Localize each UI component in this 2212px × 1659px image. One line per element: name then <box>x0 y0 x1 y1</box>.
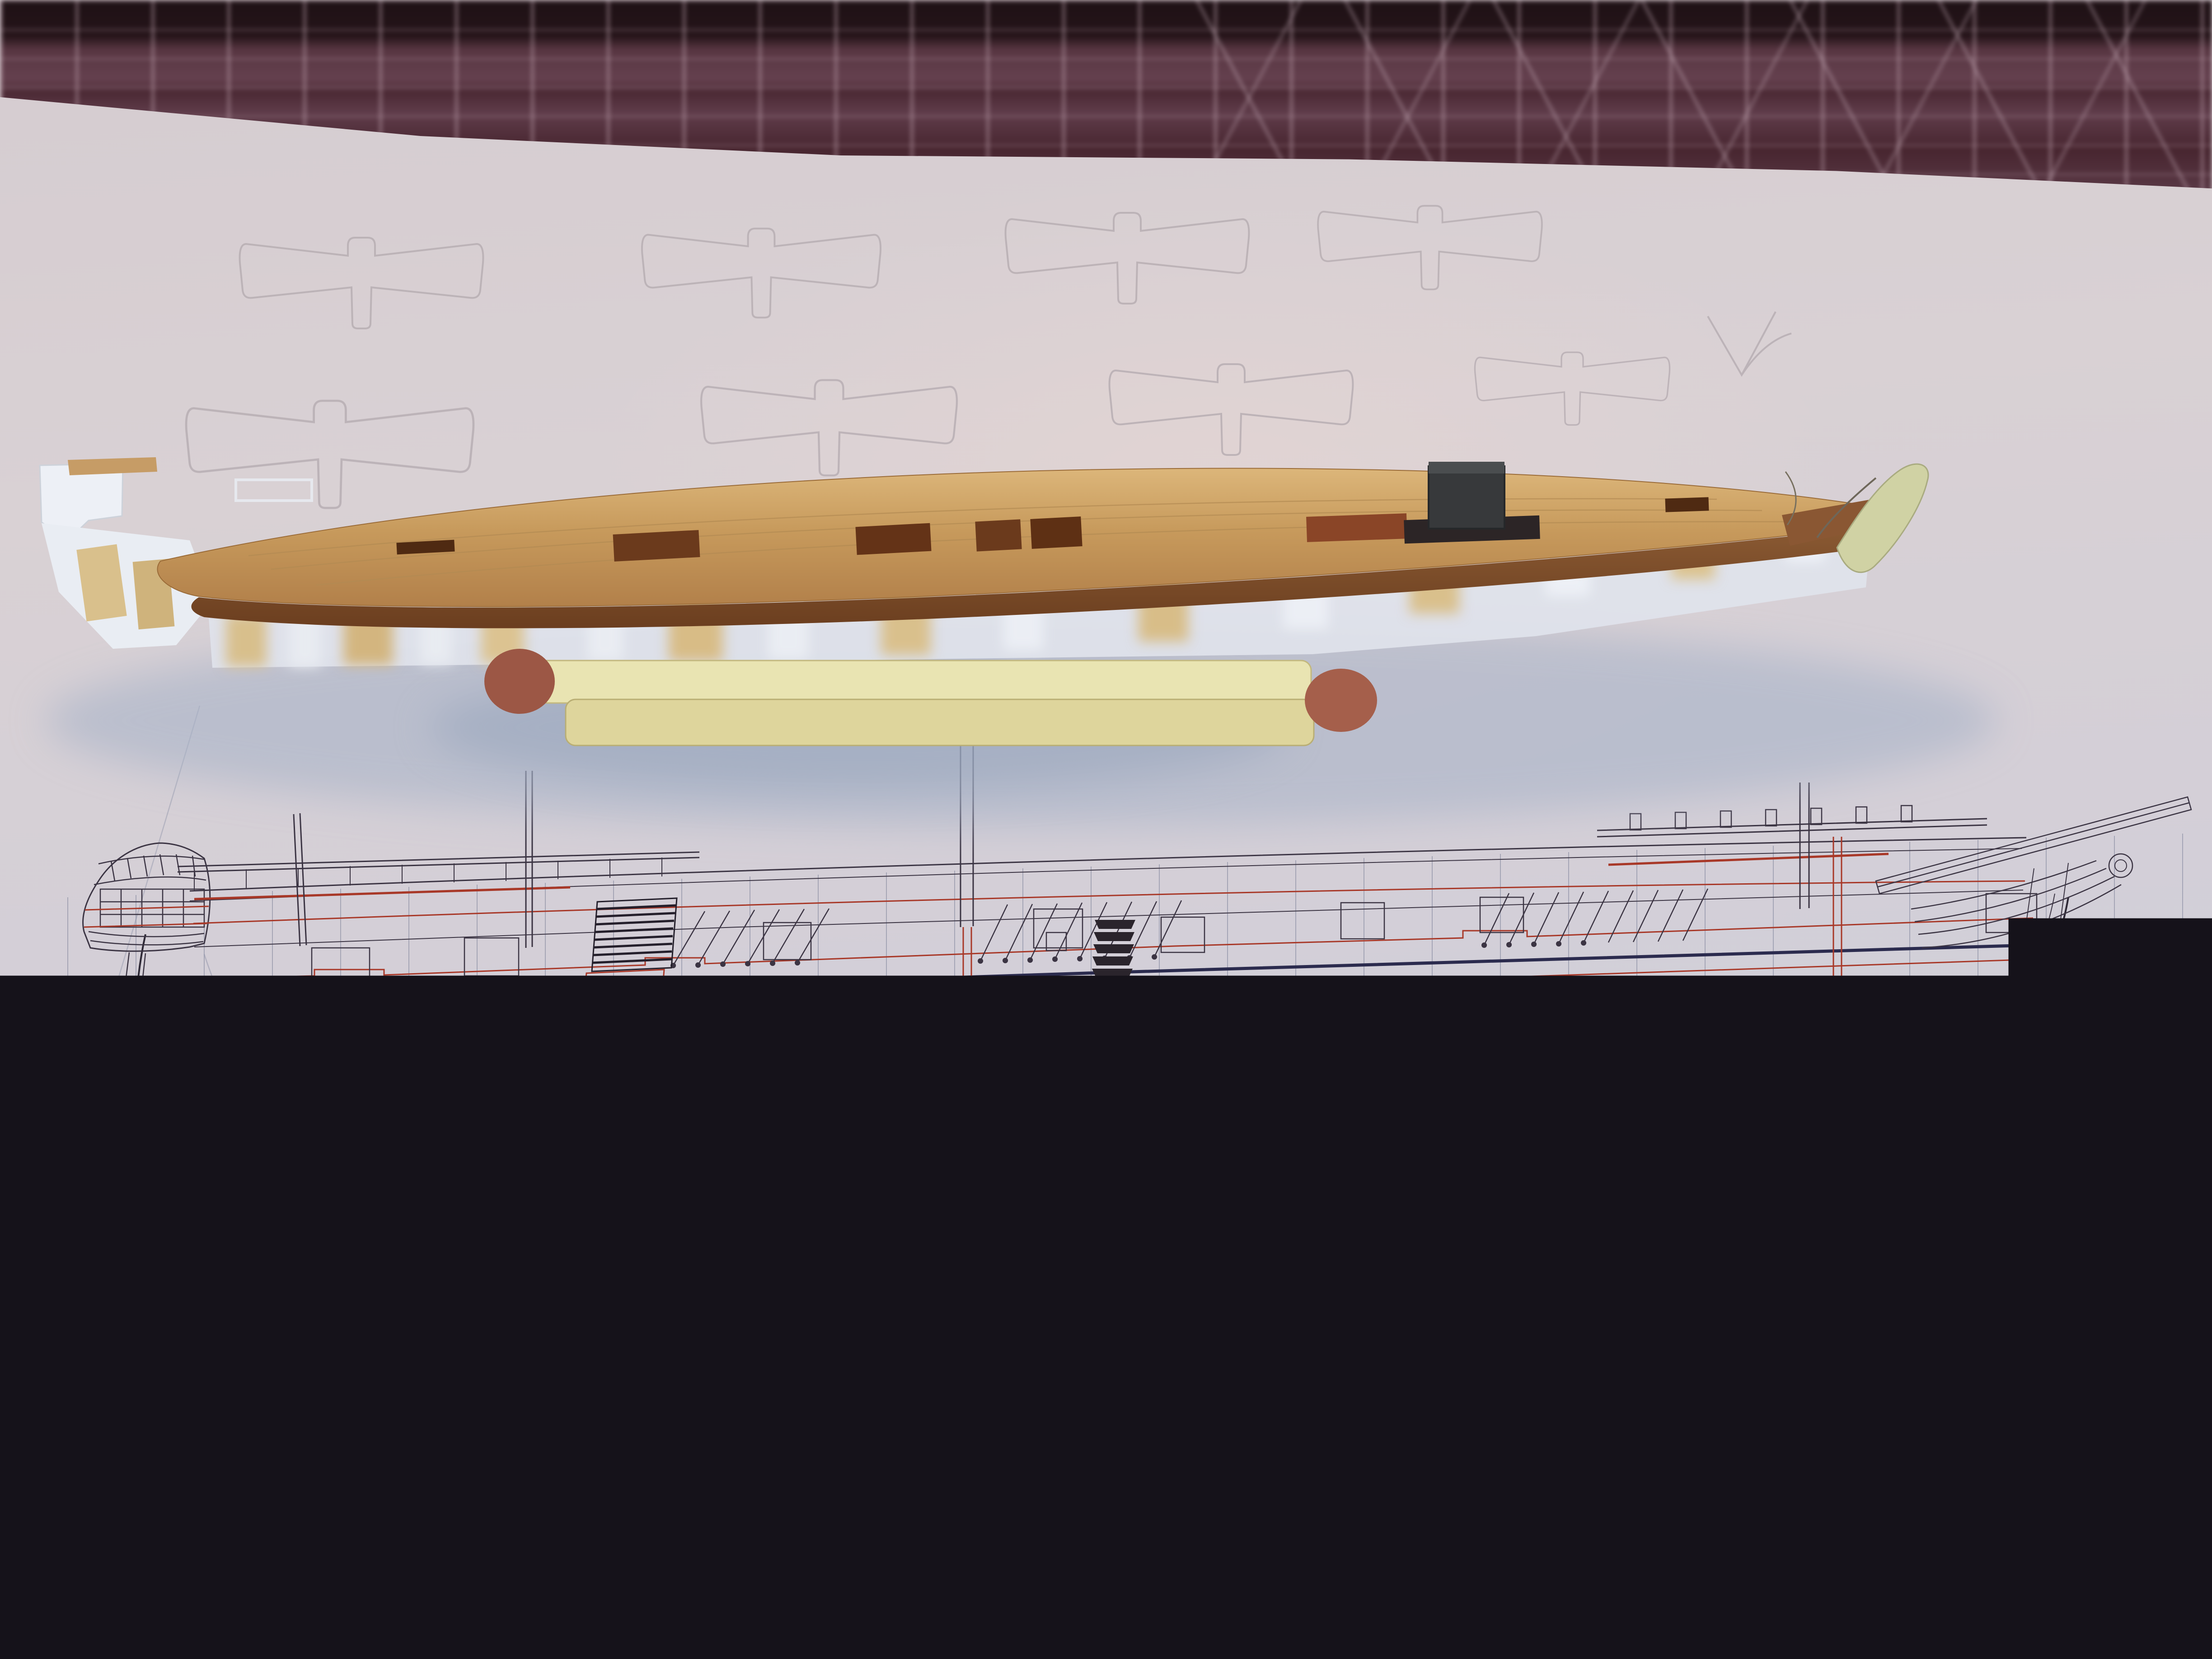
feet-label: 40' <box>1979 1115 2116 1141</box>
feet-label: 40' <box>540 1167 676 1192</box>
hatch-squares <box>312 894 2037 987</box>
scale-number: 7 <box>1067 1239 1239 1274</box>
feet-label: 90' <box>1260 1139 1396 1165</box>
station-label: H <box>1460 1116 1472 1134</box>
rail-stanchions <box>194 858 662 890</box>
station-label: 25 <box>289 1158 308 1176</box>
station-label: O <box>1649 1109 1662 1128</box>
scale-number: 12 <box>1925 1216 2097 1251</box>
station-label: X <box>1899 1101 1911 1119</box>
station-label: Q <box>1712 1107 1725 1125</box>
timberheads <box>1630 806 1912 830</box>
meter-scale-subdivisions <box>2090 1187 2160 1211</box>
station-label: 27 <box>220 1160 239 1179</box>
station-label: B <box>1275 1123 1287 1141</box>
angle-wedge <box>2123 957 2212 988</box>
red-deck-lines <box>84 854 2033 1025</box>
scale-number: 4 <box>552 1253 724 1288</box>
station-label: 3 <box>1018 1132 1027 1151</box>
match-head-right <box>1305 669 1377 732</box>
feet-label: 50' <box>684 1160 820 1186</box>
bow-head-details <box>1876 797 2191 1013</box>
waterline-lower <box>0 1004 2105 1072</box>
station-label: 5 <box>958 1134 967 1153</box>
mast-lines-red <box>963 837 1842 1064</box>
station-label: 11 <box>770 1141 788 1159</box>
station-label: 7 <box>898 1136 908 1155</box>
stair-black-rungs <box>592 905 676 963</box>
deck-hatch-brown <box>1306 513 1407 542</box>
feet-label: 10' <box>108 1181 244 1206</box>
station-label: d <box>2082 1094 2092 1112</box>
feet-label: 70' <box>972 1149 1108 1175</box>
feet-label: 20' <box>252 1177 388 1203</box>
station-label: b <box>2021 1096 2032 1115</box>
pencil-v-frame <box>1708 312 1791 375</box>
deck-hatch <box>613 530 700 562</box>
station-label: 29 <box>151 1163 170 1181</box>
meter-scale-tail <box>2159 1186 2208 1209</box>
station-label: Z <box>1961 1098 1971 1117</box>
forecastle-rail <box>1597 819 1987 837</box>
station-label: S <box>1776 1105 1787 1123</box>
matchsticks <box>484 649 1377 745</box>
companion-steps <box>1089 920 1135 1026</box>
scale-number: 3 <box>380 1258 553 1293</box>
stair-red-rungs <box>581 978 663 1038</box>
scale-number: 2 <box>209 1263 381 1298</box>
scale-number: 8 <box>1238 1235 1411 1270</box>
bowsprit <box>1876 797 2191 894</box>
station-label: (B) <box>1201 1125 1225 1144</box>
station-label: F <box>1400 1118 1410 1137</box>
feet-label: 60' <box>828 1157 964 1182</box>
photo-scene: 312927252321191715131197531⊕(B)BDFHKMOQS… <box>0 0 2212 1659</box>
deck-hatch <box>855 523 931 555</box>
feet-label: 30' <box>396 1170 532 1196</box>
red-scale-tick <box>2144 1112 2155 1136</box>
pencil-frame-sketches <box>186 206 1791 508</box>
scene-drawing <box>0 0 2212 1659</box>
station-label: D <box>1337 1120 1350 1139</box>
stern-gallery <box>83 843 210 1081</box>
belaying-pins <box>673 889 1708 965</box>
feet-label: 80' <box>1115 1146 1252 1172</box>
station-label: K <box>1523 1114 1535 1132</box>
feet-label: 100' <box>1404 1136 1540 1162</box>
scale-number: 10 <box>1582 1226 1754 1261</box>
mast-steps-red <box>942 1050 1873 1080</box>
station-label: 9 <box>839 1139 848 1157</box>
matchstick-bottom <box>566 699 1314 745</box>
feet-label: 20' <box>1692 1125 1828 1151</box>
station-label: 23 <box>358 1155 376 1174</box>
station-label: 19 <box>496 1150 514 1169</box>
scale-number: 5 <box>723 1249 896 1284</box>
station-label: 13 <box>702 1143 720 1162</box>
deck-slot <box>1665 497 1709 512</box>
match-head-left <box>484 649 555 714</box>
station-label: U <box>1837 1102 1849 1121</box>
station-label: 21 <box>426 1153 445 1172</box>
station-label: 1 <box>1078 1130 1087 1148</box>
scale-number: 11 <box>1753 1221 1926 1256</box>
station-label: 31 <box>83 1165 101 1184</box>
scale-number: 9 <box>1410 1230 1583 1265</box>
matchstick-top <box>537 661 1311 703</box>
model-hull <box>40 457 1997 827</box>
feet-label: 5' <box>52 1187 100 1210</box>
feet-label: 10' <box>1547 1129 1684 1155</box>
deck-hatch <box>1030 516 1082 549</box>
station-label: 17 <box>564 1148 583 1167</box>
deck-hatch <box>975 519 1022 551</box>
scale-number: 6 <box>895 1244 1068 1279</box>
station-label: ⊕ <box>1137 1128 1151 1146</box>
feet-label: 30' <box>1836 1119 1972 1144</box>
scale-number: 1 <box>37 1267 210 1302</box>
station-label: 15 <box>633 1145 651 1164</box>
poop-rail <box>178 852 699 872</box>
station-label: M <box>1585 1111 1599 1130</box>
black-block <box>1429 466 1504 529</box>
